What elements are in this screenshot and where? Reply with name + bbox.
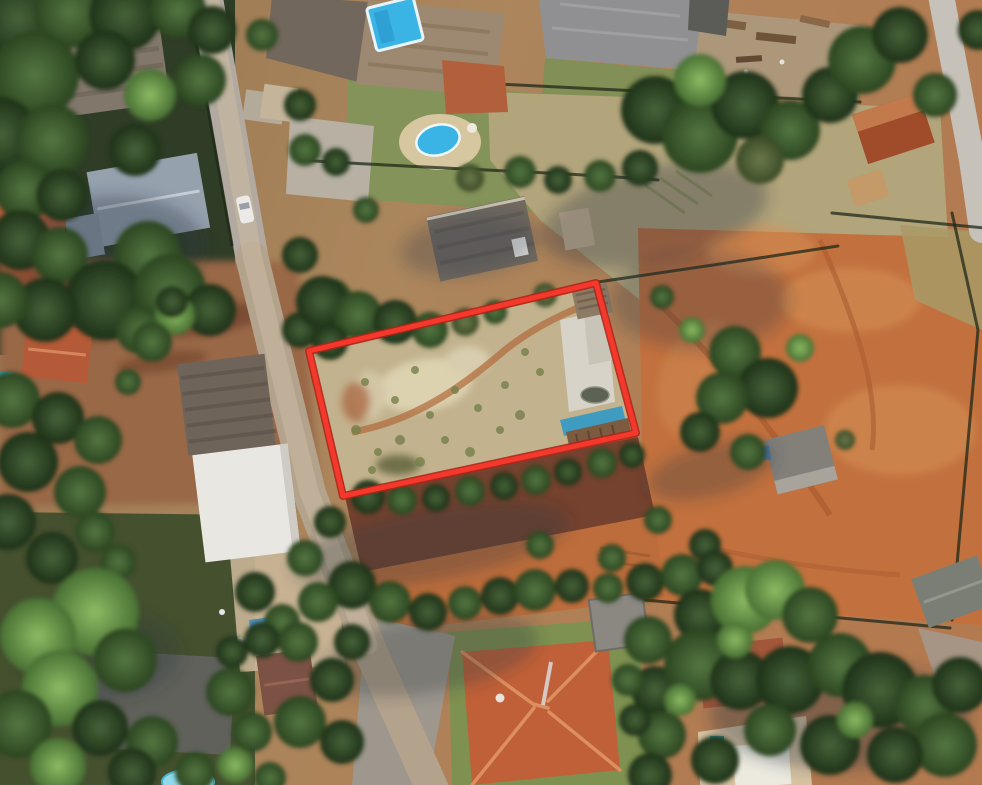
patio-umbrella	[467, 123, 477, 133]
roof-terracotta-small	[442, 60, 508, 114]
aerial-scene	[0, 0, 982, 785]
white-speck-1	[219, 609, 225, 615]
aerial-map-canvas[interactable]	[0, 0, 982, 785]
chimney	[496, 694, 505, 703]
pond-parcel	[581, 387, 609, 403]
